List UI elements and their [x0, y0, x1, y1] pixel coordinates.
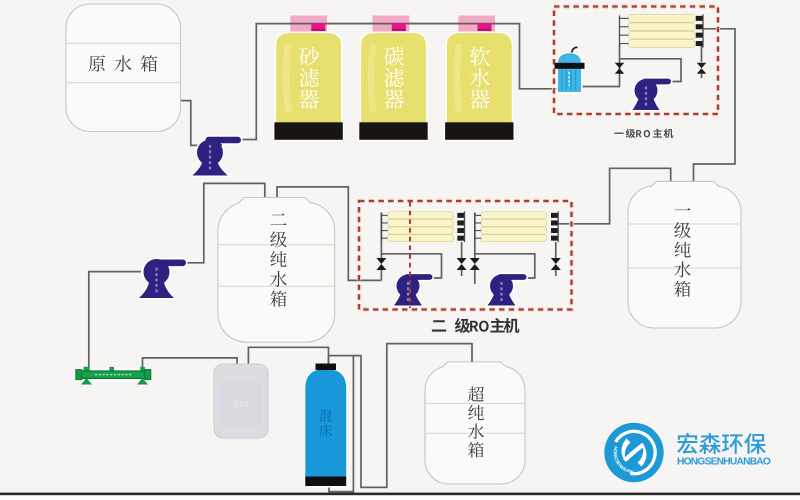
svg-text:HONGSENHUANBAO: HONGSENHUANBAO — [677, 457, 771, 468]
svg-text:EDI: EDI — [234, 399, 248, 409]
